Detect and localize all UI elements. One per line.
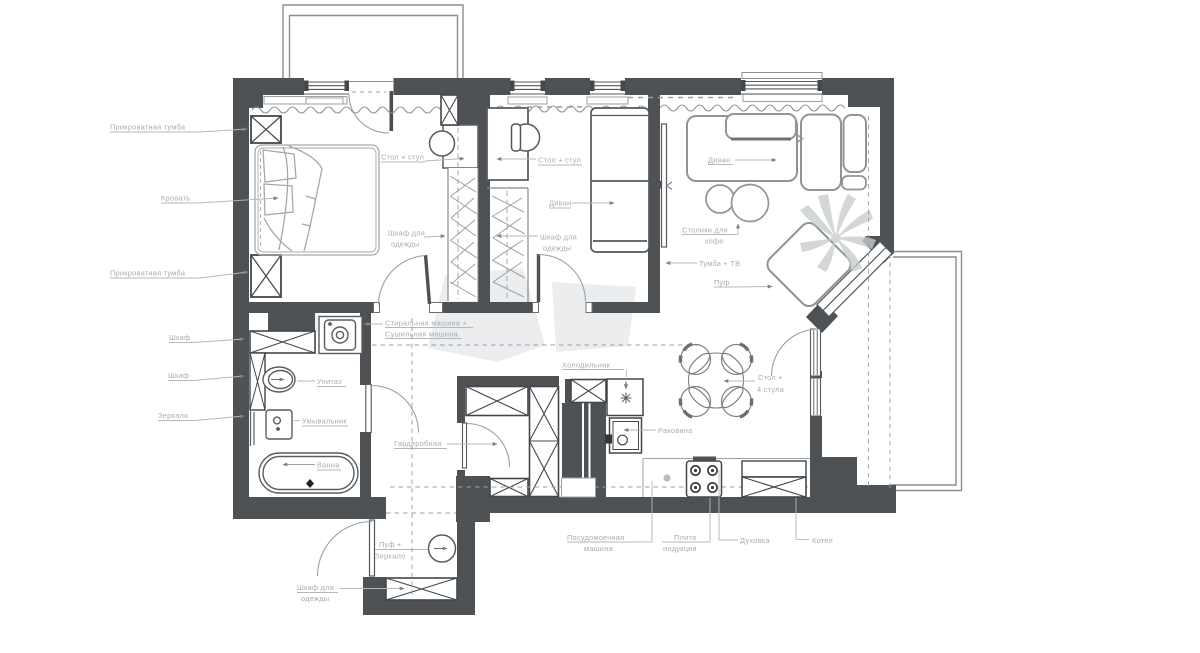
svg-text:Зеркало: Зеркало bbox=[158, 411, 188, 420]
svg-text:кофе: кофе bbox=[705, 237, 724, 246]
svg-text:Шкаф для: Шкаф для bbox=[297, 583, 334, 592]
svg-text:Сушильная машина: Сушильная машина bbox=[385, 330, 459, 339]
svg-text:Шкаф для: Шкаф для bbox=[540, 233, 577, 242]
svg-text:одежды: одежды bbox=[543, 244, 571, 253]
svg-text:Пуф: Пуф bbox=[714, 278, 730, 287]
svg-text:Прикроватная тумба: Прикроватная тумба bbox=[110, 269, 186, 278]
svg-text:Стол + стул: Стол + стул bbox=[381, 153, 424, 162]
svg-text:Стол + стул: Стол + стул bbox=[538, 156, 581, 165]
svg-text:Котел: Котел bbox=[812, 536, 833, 545]
svg-text:Умывальник: Умывальник bbox=[302, 417, 347, 426]
svg-text:Диван: Диван bbox=[708, 156, 730, 165]
svg-text:Посудомоечная: Посудомоечная bbox=[567, 533, 624, 542]
svg-text:Духовка: Духовка bbox=[740, 536, 770, 545]
svg-text:Ванна: Ванна bbox=[317, 461, 340, 470]
svg-text:индукция: индукция bbox=[663, 544, 697, 553]
svg-text:одежды: одежды bbox=[301, 594, 329, 603]
svg-text:Плита: Плита bbox=[674, 533, 697, 542]
svg-text:Стол +: Стол + bbox=[758, 373, 783, 382]
svg-text:Гардеробная: Гардеробная bbox=[394, 439, 441, 448]
svg-text:Тумба + ТВ: Тумба + ТВ bbox=[699, 259, 740, 268]
svg-text:Пуф +: Пуф + bbox=[379, 540, 402, 549]
svg-text:Шкаф: Шкаф bbox=[168, 371, 189, 380]
svg-text:Унитаз: Унитаз bbox=[317, 377, 342, 386]
svg-text:Шкаф для: Шкаф для bbox=[388, 229, 425, 238]
svg-text:Холодильник: Холодильник bbox=[562, 361, 610, 370]
svg-text:Шкаф: Шкаф bbox=[169, 333, 190, 342]
svg-text:Зеркало: Зеркало bbox=[375, 552, 405, 561]
svg-text:Кровать: Кровать bbox=[161, 194, 190, 203]
svg-text:машина: машина bbox=[584, 544, 614, 553]
svg-text:Прикроватная тумба: Прикроватная тумба bbox=[110, 123, 186, 132]
svg-text:Диван: Диван bbox=[549, 199, 571, 208]
svg-text:4 стула: 4 стула bbox=[757, 385, 785, 394]
svg-text:Столики для: Столики для bbox=[682, 226, 728, 235]
svg-text:Раковина: Раковина bbox=[658, 426, 693, 435]
svg-text:Стиральная машина +: Стиральная машина + bbox=[385, 319, 467, 328]
svg-text:одежды: одежды bbox=[391, 240, 419, 249]
